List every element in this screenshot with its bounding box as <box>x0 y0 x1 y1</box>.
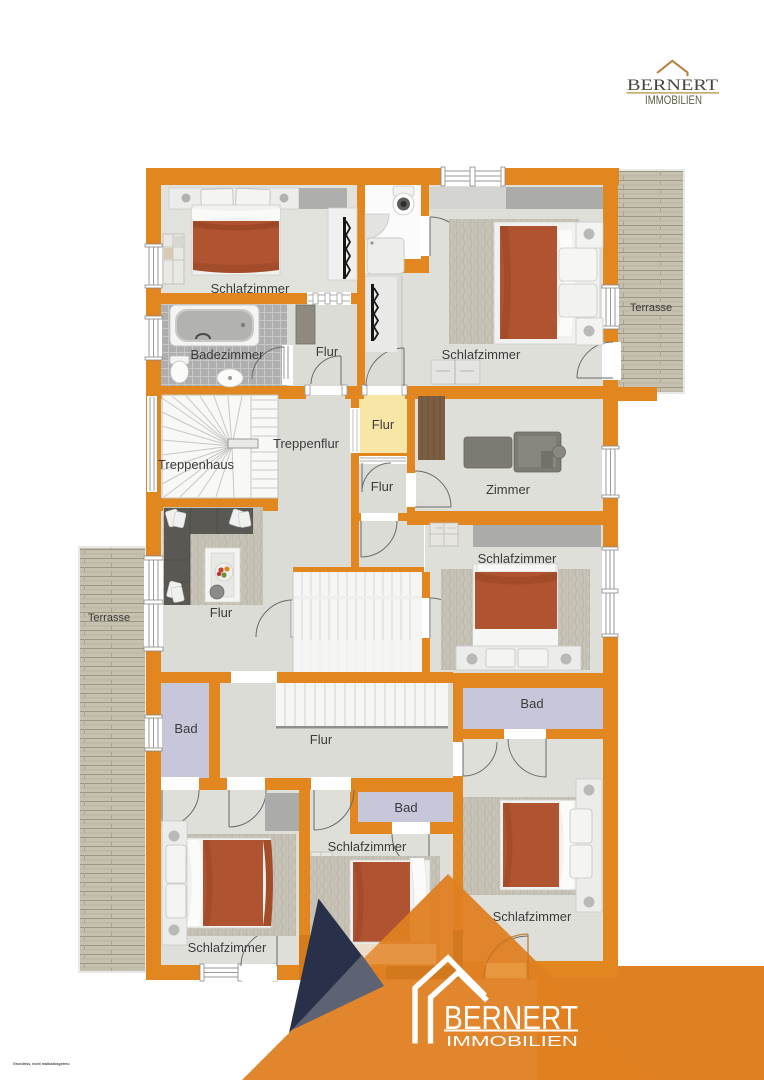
svg-text:Treppenflur: Treppenflur <box>273 436 340 451</box>
svg-text:Schlafzimmer: Schlafzimmer <box>188 940 267 955</box>
svg-text:Bad: Bad <box>174 721 197 736</box>
svg-text:Terrasse: Terrasse <box>630 302 672 314</box>
svg-text:Schlafzimmer: Schlafzimmer <box>211 281 290 296</box>
svg-text:Flur: Flur <box>310 732 333 747</box>
svg-text:Schlafzimmer: Schlafzimmer <box>442 347 521 362</box>
svg-text:Grundriss, nicht maßstabsgetre: Grundriss, nicht maßstabsgetreu <box>13 1062 70 1066</box>
svg-text:Flur: Flur <box>316 344 339 359</box>
svg-text:IMMOBILIEN: IMMOBILIEN <box>446 1033 578 1050</box>
svg-text:Flur: Flur <box>372 417 395 432</box>
svg-text:Schlafzimmer: Schlafzimmer <box>493 909 572 924</box>
svg-text:Bad: Bad <box>394 800 417 815</box>
svg-text:Terrasse: Terrasse <box>88 612 130 624</box>
svg-text:Flur: Flur <box>371 479 394 494</box>
svg-text:Zimmer: Zimmer <box>486 482 531 497</box>
svg-text:Bad: Bad <box>520 696 543 711</box>
svg-text:Schlafzimmer: Schlafzimmer <box>328 839 407 854</box>
svg-text:Flur: Flur <box>210 605 233 620</box>
svg-text:Schlafzimmer: Schlafzimmer <box>478 551 557 566</box>
svg-text:Badezimmer: Badezimmer <box>191 347 265 362</box>
svg-text:Treppenhaus: Treppenhaus <box>158 457 235 472</box>
svg-text:BERNERT: BERNERT <box>627 77 719 94</box>
svg-text:IMMOBILIEN: IMMOBILIEN <box>645 95 702 107</box>
